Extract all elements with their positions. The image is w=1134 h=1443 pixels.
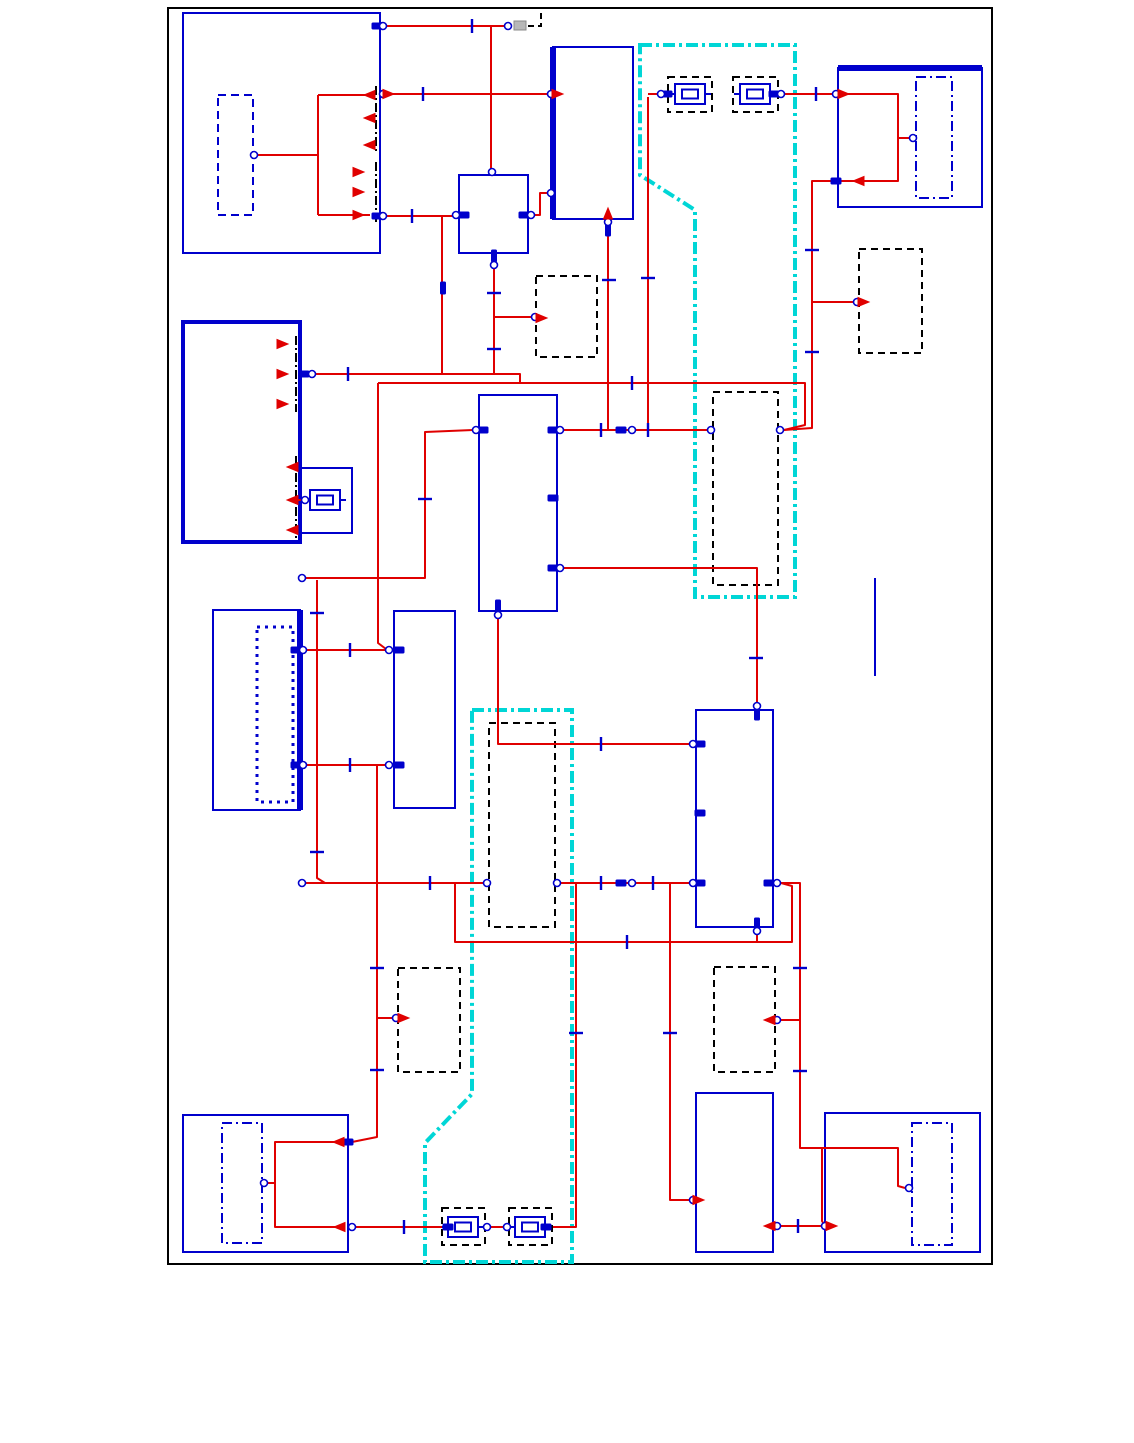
- terminal-pad[interactable]: [495, 600, 501, 613]
- port-connector[interactable]: [349, 1224, 356, 1231]
- port-connector[interactable]: [302, 497, 309, 504]
- port-connector[interactable]: [453, 212, 460, 219]
- port-connector[interactable]: [554, 880, 561, 887]
- port-connector[interactable]: [548, 190, 555, 197]
- terminal-pad[interactable]: [491, 250, 497, 263]
- port-connector[interactable]: [528, 212, 535, 219]
- port-connector[interactable]: [557, 565, 564, 572]
- terminal-pad[interactable]: [394, 647, 405, 654]
- port-connector[interactable]: [484, 1224, 491, 1231]
- terminal-pad[interactable]: [831, 178, 842, 185]
- port-connector[interactable]: [690, 880, 697, 887]
- port-connector[interactable]: [629, 880, 636, 887]
- port-connector[interactable]: [754, 928, 761, 935]
- port-connector[interactable]: [708, 427, 715, 434]
- port-connector[interactable]: [300, 762, 307, 769]
- terminator-box[interactable]: [514, 21, 526, 30]
- port-connector[interactable]: [386, 762, 393, 769]
- port-connector[interactable]: [251, 152, 258, 159]
- port-connector[interactable]: [910, 135, 917, 142]
- terminal-pad[interactable]: [541, 1224, 552, 1231]
- port-connector[interactable]: [690, 741, 697, 748]
- port-connector[interactable]: [778, 91, 785, 98]
- port-connector[interactable]: [491, 262, 498, 269]
- port-connector[interactable]: [309, 371, 316, 378]
- terminal-pad[interactable]: [695, 810, 706, 817]
- port-connector[interactable]: [380, 213, 387, 220]
- port-connector[interactable]: [557, 427, 564, 434]
- schematic-canvas: [0, 0, 1134, 1443]
- port-connector[interactable]: [261, 1180, 268, 1187]
- port-connector[interactable]: [380, 23, 387, 30]
- port-connector[interactable]: [754, 703, 761, 710]
- port-connector[interactable]: [299, 575, 306, 582]
- terminal-pad[interactable]: [443, 1224, 454, 1231]
- port-connector[interactable]: [473, 427, 480, 434]
- port-connector[interactable]: [495, 612, 502, 619]
- port-connector[interactable]: [484, 880, 491, 887]
- port-connector[interactable]: [774, 880, 781, 887]
- port-connector[interactable]: [777, 427, 784, 434]
- port-connector[interactable]: [658, 91, 665, 98]
- port-connector[interactable]: [906, 1185, 913, 1192]
- port-connector[interactable]: [505, 23, 512, 30]
- port-connector[interactable]: [504, 1224, 511, 1231]
- terminal-pad[interactable]: [394, 762, 405, 769]
- terminal-pad[interactable]: [616, 427, 627, 434]
- port-connector[interactable]: [629, 427, 636, 434]
- terminal-pad[interactable]: [440, 282, 446, 295]
- port-connector[interactable]: [299, 880, 306, 887]
- terminal-pad[interactable]: [616, 880, 627, 887]
- port-connector[interactable]: [386, 647, 393, 654]
- terminal-pad[interactable]: [548, 495, 559, 502]
- port-connector[interactable]: [300, 647, 307, 654]
- schematic-page: [0, 0, 1134, 1443]
- port-connector[interactable]: [605, 219, 612, 226]
- port-connector[interactable]: [489, 169, 496, 176]
